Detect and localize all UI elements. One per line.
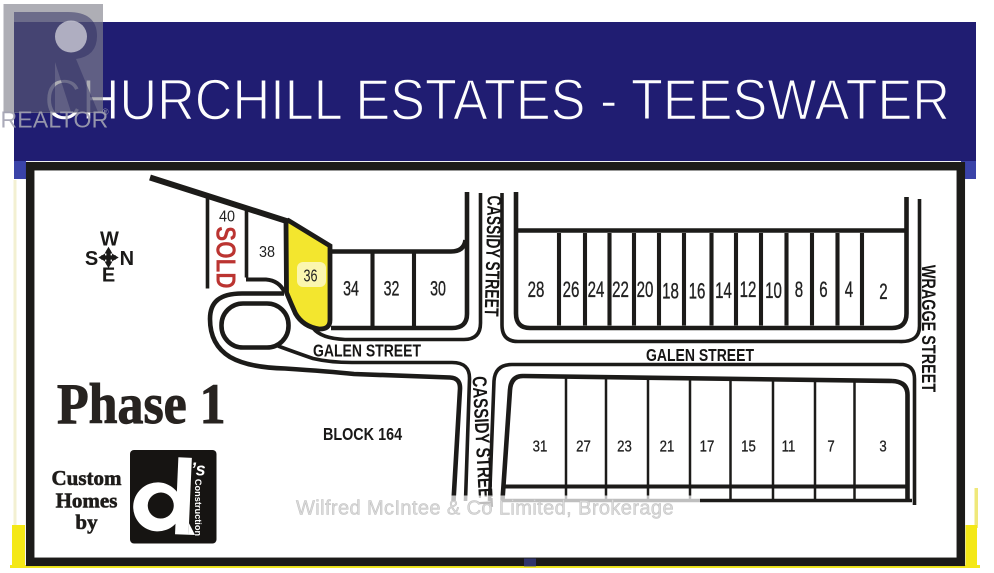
svg-text:REALTOR: REALTOR [1,107,109,133]
svg-text:N: N [120,248,134,270]
svg-text:2: 2 [879,280,887,305]
svg-text:W: W [100,229,119,251]
svg-text:8: 8 [795,278,803,303]
svg-text:BLOCK 164: BLOCK 164 [323,425,402,445]
svg-text:28: 28 [528,278,545,303]
svg-text:36: 36 [303,267,317,287]
svg-text:®: ® [102,107,109,117]
svg-text:WRAGGE STREET: WRAGGE STREET [917,265,940,393]
svg-text:Construction: Construction [193,479,203,537]
svg-text:GALEN STREET: GALEN STREET [313,342,421,361]
svg-text:18: 18 [662,280,679,305]
svg-text:12: 12 [740,278,757,303]
svg-text:by: by [75,510,98,534]
svg-text:SOLD: SOLD [210,226,241,288]
svg-text:34: 34 [343,277,359,301]
svg-text:40: 40 [219,208,235,226]
svg-text:’s: ’s [191,460,206,480]
svg-text:7: 7 [827,439,834,456]
svg-text:11: 11 [782,439,796,456]
svg-text:14: 14 [715,279,732,304]
svg-text:38: 38 [259,243,275,261]
svg-text:4: 4 [845,278,854,303]
svg-text:3: 3 [879,439,886,456]
svg-text:20: 20 [637,278,654,303]
svg-text:CHURCHILL ESTATES - TEESWATER: CHURCHILL ESTATES - TEESWATER [44,69,950,133]
svg-text:30: 30 [430,277,446,301]
svg-text:Phase 1: Phase 1 [57,372,226,436]
svg-text:17: 17 [700,439,715,456]
svg-text:22: 22 [612,278,629,303]
svg-text:23: 23 [617,439,632,456]
svg-text:21: 21 [660,439,675,456]
svg-text:32: 32 [384,277,400,301]
svg-text:31: 31 [533,439,548,456]
svg-text:Homes: Homes [56,489,118,513]
svg-text:CASSIDY STREET: CASSIDY STREET [480,195,506,317]
svg-text:26: 26 [563,278,580,303]
svg-text:15: 15 [741,439,756,456]
svg-text:24: 24 [588,278,605,303]
svg-text:10: 10 [765,279,782,304]
svg-text:Custom: Custom [51,466,122,490]
svg-text:GALEN STREET: GALEN STREET [646,347,754,366]
svg-text:27: 27 [576,439,591,456]
svg-text:6: 6 [819,278,827,303]
svg-text:S: S [85,248,98,270]
svg-text:16: 16 [689,280,706,305]
svg-text:Wilfred McIntee & Co Limited,: Wilfred McIntee & Co Limited, Brokerage [296,498,674,520]
